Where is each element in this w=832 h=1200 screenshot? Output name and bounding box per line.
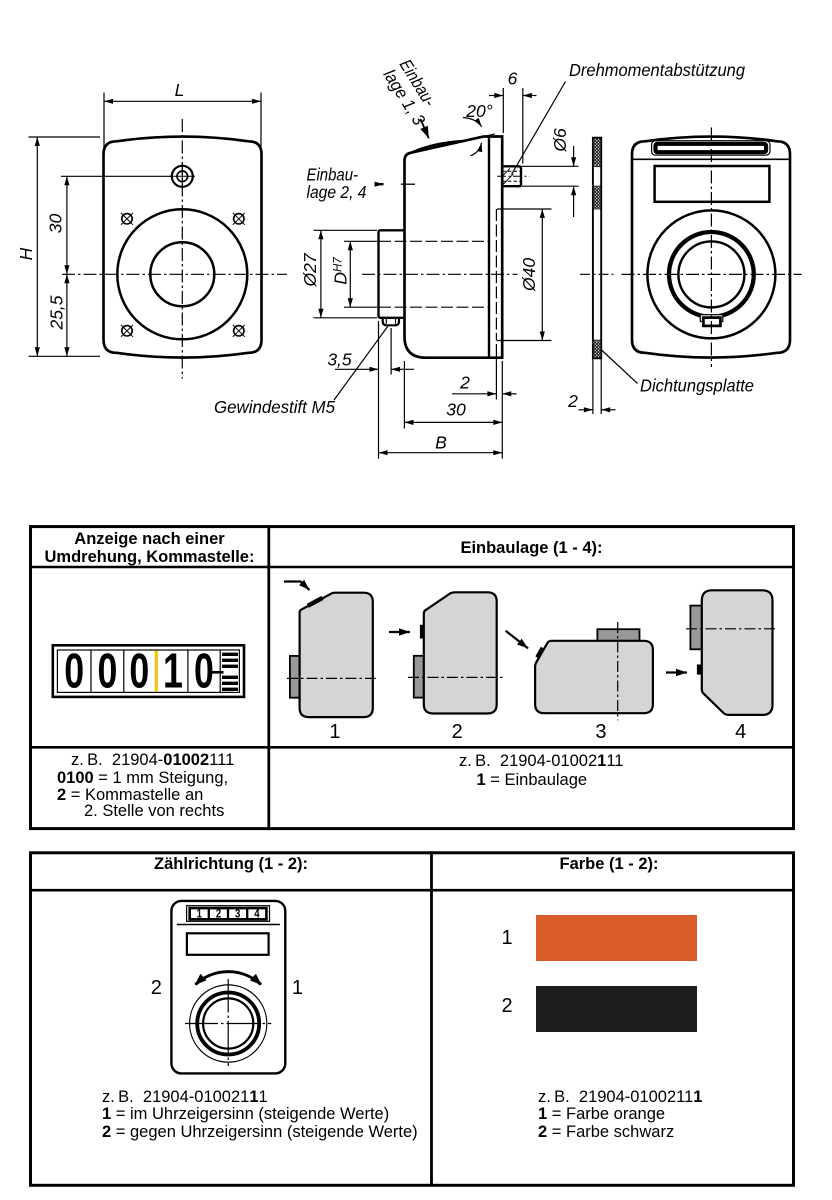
svg-text:4: 4 [254, 908, 259, 921]
svg-text:1: 1 [197, 908, 202, 921]
svg-text:0: 0 [64, 644, 84, 699]
svg-text:2: 2 [216, 908, 221, 921]
svg-text:0: 0 [129, 644, 149, 699]
svg-text:1: 1 [163, 644, 183, 699]
svg-text:0: 0 [194, 644, 214, 699]
svg-text:2: 2 [452, 721, 463, 743]
svg-text:3: 3 [595, 721, 606, 743]
svg-text:3: 3 [235, 908, 240, 921]
svg-text:1: 1 [292, 977, 303, 999]
svg-text:4: 4 [735, 721, 746, 743]
svg-text:2: 2 [151, 977, 162, 999]
svg-text:0: 0 [97, 644, 117, 699]
svg-text:1: 1 [329, 721, 340, 743]
